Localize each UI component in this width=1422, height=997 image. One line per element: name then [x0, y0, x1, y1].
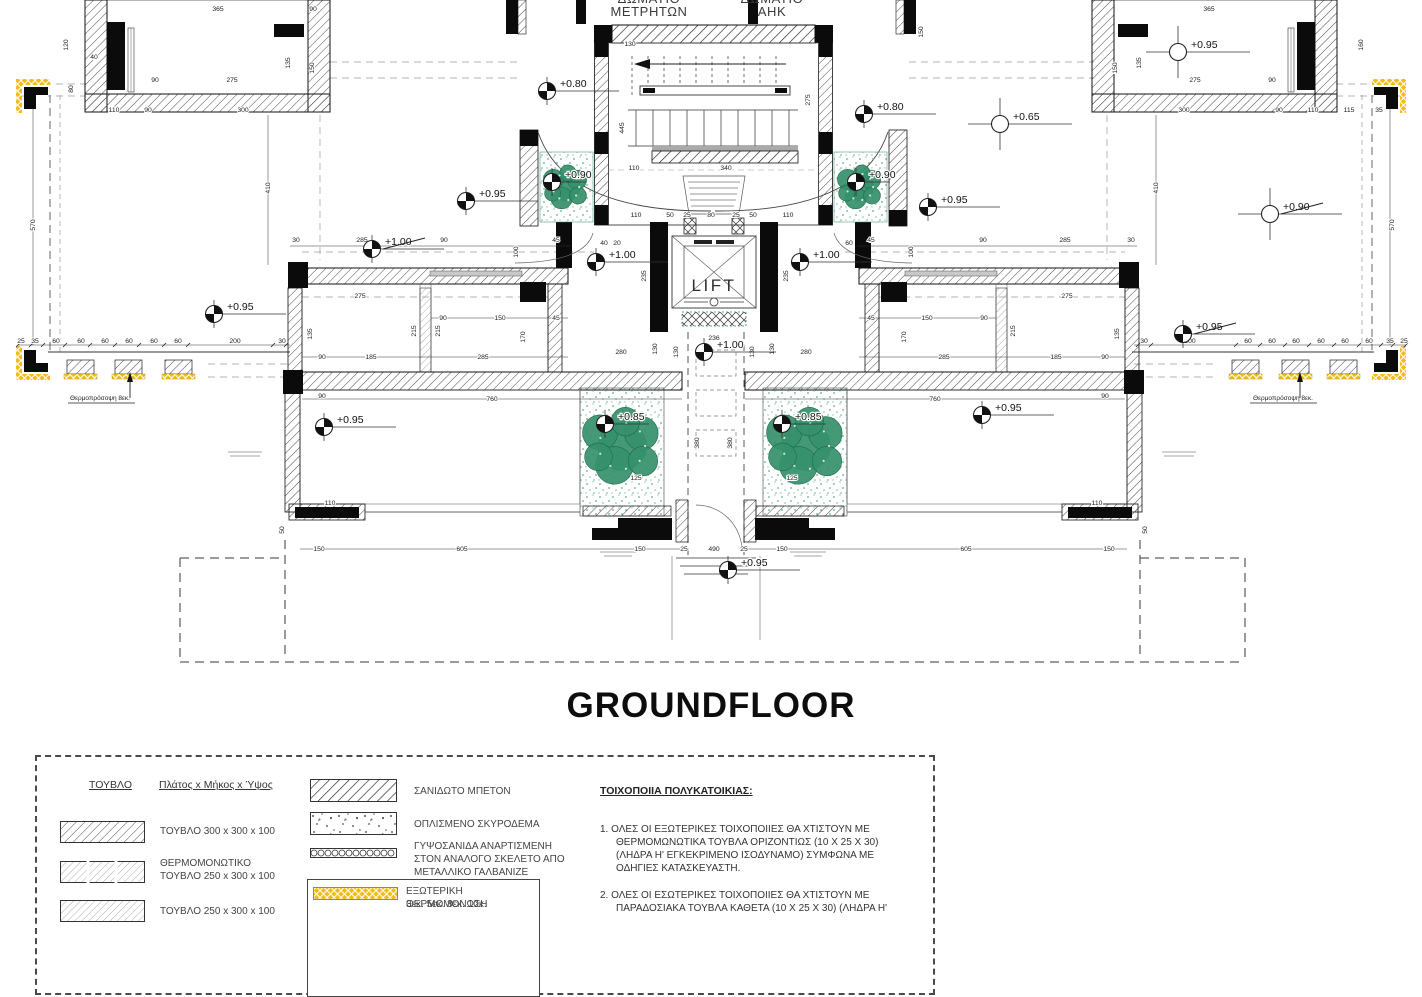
- dimension-label: 90: [1101, 393, 1109, 400]
- legend-swatch-ext-insulation: [313, 887, 398, 900]
- dimension-label: 60: [174, 338, 182, 345]
- dimension-label: 90: [151, 77, 159, 84]
- level-marker: +1.00: [364, 235, 445, 263]
- level-value: +1.00: [609, 249, 636, 261]
- legend-swatch-brick-300: [60, 821, 145, 843]
- dimension-label: 50: [1142, 526, 1149, 534]
- level-marker: +0.90: [1238, 188, 1342, 240]
- legend-label-thermo-brick-1: ΘΕΡΜΟΜΟΝΩΤΙΚΟ: [160, 857, 251, 870]
- dimension-label: 90: [318, 354, 326, 361]
- dimension-label: 25: [740, 546, 748, 553]
- floor-plan-canvas: 3652759011090300120408013515090365275901…: [0, 0, 1422, 668]
- construction-note-tag: [683, 176, 745, 214]
- dimension-label: 275: [354, 293, 366, 300]
- top-left-room: [85, 0, 330, 112]
- dimension-label: 380: [694, 437, 701, 449]
- dimension-label: 110: [109, 107, 120, 114]
- thermal-facade-annotation: Θερμοπρόσοψη 8εκ.: [1253, 394, 1313, 402]
- masonry-note-1-line-4: ΟΔΗΓΙΕΣ ΚΑΤΑΣΚΕΥΑΣΤΗ.: [600, 862, 740, 875]
- dimension-label: 60: [101, 338, 109, 345]
- dimension-label: 45: [867, 237, 875, 244]
- dimension-label: 570: [1389, 219, 1396, 231]
- level-marker: +0.80: [856, 100, 937, 128]
- legend-dims-header: Πλάτος x Μήκος x Ύψος: [159, 779, 273, 791]
- dimension-label: 280: [615, 349, 627, 356]
- dimension-label: 215: [435, 325, 442, 337]
- dimension-label: 605: [456, 546, 468, 553]
- stair-core: [506, 0, 916, 268]
- dimension-label: 150: [494, 315, 506, 322]
- dimension-label: 280: [800, 349, 812, 356]
- legend-label-board-concrete: ΣΑΝΙΔΩΤΟ ΜΠΕΤΟΝ: [414, 785, 511, 798]
- dimension-label: 380: [727, 437, 734, 449]
- dimension-label: 125: [630, 475, 642, 482]
- lift-label: LIFT: [692, 276, 737, 295]
- level-value: +0.85: [618, 411, 645, 423]
- left-wing: [285, 262, 682, 390]
- dimension-label: 60: [150, 338, 158, 345]
- dimension-label: 150: [1112, 62, 1119, 74]
- insulated-corner-bottomleft: [16, 346, 50, 380]
- legend-label-gypsum-3: ΜΕΤΑΛΛΙΚΟ ΓΑΛΒΑΝΙΖΕ: [414, 866, 528, 879]
- dimension-label: 115: [1344, 107, 1355, 114]
- dimension-label: 100: [908, 246, 915, 258]
- dimension-label: 90: [1101, 354, 1109, 361]
- legend-label-gypsum-2: ΣΤΟΝ ΑΝΑΛΟΓΟ ΣΚΕΛΕΤΟ ΑΠΟ: [414, 853, 565, 866]
- dimension-label: 365: [1203, 6, 1215, 13]
- dimension-label: 60: [52, 338, 60, 345]
- dimension-label: 185: [365, 354, 377, 361]
- dimension-label: 30: [1140, 338, 1148, 345]
- dimension-label: 90: [309, 6, 317, 13]
- dimension-label: 110: [1092, 500, 1103, 507]
- dimension-label: 275: [226, 77, 238, 84]
- dimension-label: 215: [411, 325, 418, 337]
- dimension-label: 135: [307, 328, 314, 340]
- dimension-label: 120: [63, 39, 70, 51]
- level-value: +0.95: [941, 194, 968, 206]
- dimension-label: 60: [125, 338, 133, 345]
- level-marker: +0.95: [206, 300, 287, 328]
- dimension-label: 125: [786, 475, 798, 482]
- dimension-label: 135: [1136, 57, 1143, 69]
- insulated-corner-bottomright: [1372, 346, 1406, 380]
- legend-insulation-box: ΕΞΩΤΕΡΙΚΗ ΘΕΡΜΟΜΟΝΩΣΗ 3εκ. 5εκ. 8εκ. 10κ…: [307, 879, 540, 997]
- dimension-label: 285: [1059, 237, 1071, 244]
- dimension-label: 90: [979, 237, 987, 244]
- dimension-label: 90: [440, 237, 448, 244]
- dimension-label: 80: [707, 212, 715, 219]
- dimension-label: 25: [732, 212, 740, 219]
- legend-label-reinforced-concrete: ΟΠΛΙΣΜΕΝΟ ΣΚΥΡΟΔΕΜΑ: [414, 818, 540, 831]
- level-value: +0.95: [1191, 39, 1218, 51]
- dimension-label: 410: [265, 182, 272, 194]
- dimension-label: 170: [901, 331, 908, 343]
- architectural-drawing-page: { "title": "GROUNDFLOOR", "plan": { "roo…: [0, 0, 1422, 914]
- left-terrace: [16, 79, 290, 380]
- level-value: +0.90: [1283, 201, 1310, 213]
- dimension-label: 760: [486, 396, 498, 403]
- level-marker: +0.95: [974, 401, 1055, 429]
- dimension-label: 50: [666, 212, 674, 219]
- level-value: +1.00: [385, 236, 412, 248]
- dimension-label: 35: [1375, 107, 1383, 114]
- dimension-label: 90: [318, 393, 326, 400]
- dimension-label: 340: [720, 165, 732, 172]
- legend-label-brick-300: ΤΟΥΒΛΟ 300 x 300 x 100: [160, 825, 275, 838]
- level-value: +0.95: [227, 301, 254, 313]
- legend-label-gypsum-1: ΓΥΨΟΣΑΝΙΔΑ ΑΝΑΡΤΙΣΜΕΝΗ: [414, 840, 552, 853]
- dimension-label: 605: [960, 546, 972, 553]
- dimension-label: 50: [279, 526, 286, 534]
- masonry-note-1-line-2: ΘΕΡΜΟΜΩΝΩΤΙΚΑ ΤΟΥΒΛΑ ΟΡΙΖΟΝΤΙΩΣ (10 Χ 25…: [600, 836, 878, 849]
- meter-room-label-line2: ΜΕΤΡΗΤΩΝ: [610, 4, 687, 19]
- dimension-label: 150: [776, 546, 788, 553]
- dimension-label: 90: [1268, 77, 1276, 84]
- dimension-label: 160: [1358, 39, 1365, 51]
- dimension-label: 110: [1308, 107, 1319, 114]
- dimension-label: 25: [17, 338, 25, 345]
- dimension-label: 60: [1341, 338, 1349, 345]
- masonry-note-2-line-2: ΠΑΡΑΔΟΣΙΑΚΑ ΤΟΥΒΛΑ ΚΑΘΕΤΑ (10 Χ 25 Χ 30)…: [600, 902, 887, 915]
- level-value: +1.00: [813, 249, 840, 261]
- legend-swatch-gypsum-board: [310, 848, 397, 858]
- level-value: +0.80: [877, 101, 904, 113]
- dimension-label: 60: [1244, 338, 1252, 345]
- dimension-label: 235: [641, 270, 648, 282]
- dimension-label: 200: [229, 338, 241, 345]
- thermal-facade-annotation: Θερμοπρόσοψη 8εκ.: [70, 394, 130, 402]
- level-value: +0.95: [337, 414, 364, 426]
- dimension-label: 410: [1153, 182, 1160, 194]
- dimension-label: 90: [439, 315, 447, 322]
- level-marker: +0.95: [920, 193, 1001, 221]
- dimension-label: 60: [1365, 338, 1373, 345]
- dimension-label: 490: [708, 546, 720, 553]
- dimension-label: 60: [1317, 338, 1325, 345]
- dimension-label: 110: [631, 212, 642, 219]
- legend-label-thermo-brick-2: ΤΟΥΒΛΟ 250 x 300 x 100: [160, 870, 275, 883]
- dimension-label: 150: [921, 315, 933, 322]
- floor-plan-drawing: 3652759011090300120408013515090365275901…: [0, 0, 1422, 668]
- dimension-label: 30: [292, 237, 300, 244]
- dimension-label: 60: [845, 240, 853, 247]
- dimension-label: 110: [783, 212, 794, 219]
- dimension-label: 30: [278, 338, 286, 345]
- lift-shaft: [650, 218, 778, 332]
- level-value: +1.00: [717, 339, 744, 351]
- dimension-label: 25: [680, 546, 688, 553]
- dimension-label: 30: [1127, 237, 1135, 244]
- dimension-label: 150: [1103, 546, 1115, 553]
- dimension-label: 275: [805, 94, 812, 106]
- legend-swatch-brick-250: [60, 900, 145, 922]
- ahk-room-label-line2: ΑΗΚ: [758, 4, 787, 19]
- dimension-label: 130: [624, 41, 636, 48]
- dimension-label: 150: [309, 62, 316, 74]
- dimension-label: 110: [325, 500, 336, 507]
- level-marker: +0.95: [1146, 26, 1250, 78]
- level-value: +0.95: [1196, 321, 1223, 333]
- legend-box: ΤΟΥΒΛΟ Πλάτος x Μήκος x Ύψος ΤΟΥΒΛΟ 300 …: [35, 755, 935, 995]
- legend-label-brick-250: ΤΟΥΒΛΟ 250 x 300 x 100: [160, 905, 275, 918]
- dimension-label: 130: [652, 343, 659, 355]
- level-value: +0.95: [479, 188, 506, 200]
- dimension-label: 110: [629, 165, 640, 172]
- dimension-label: 235: [783, 270, 790, 282]
- dimension-label: 90: [1275, 107, 1283, 114]
- level-value: +0.90: [565, 169, 592, 181]
- dimension-label: 45: [867, 315, 875, 322]
- legend-swatch-board-concrete: [310, 779, 397, 802]
- dimension-label: 35: [31, 338, 39, 345]
- dimension-label: 570: [30, 219, 37, 231]
- dimension-label: 300: [1178, 107, 1190, 114]
- page-title: GROUNDFLOOR: [0, 686, 1422, 726]
- legend-label-ext-insulation-2: 3εκ. 5εκ. 8εκ. 10κ.: [406, 898, 487, 911]
- masonry-note-2-line-1: 2. ΟΛΕΣ ΟΙ ΕΣΩΤΕΡΙΚΕΣ ΤΟΙΧΟΠΟΙΙΕΣ ΘΑ ΧΤΙ…: [600, 889, 869, 902]
- level-value: +0.65: [1013, 111, 1040, 123]
- dimension-label: 185: [1050, 354, 1062, 361]
- dimension-label: 40: [600, 240, 608, 247]
- dimension-label: 130: [769, 343, 776, 355]
- dimension-label: 300: [237, 107, 249, 114]
- dimension-label: 60: [1292, 338, 1300, 345]
- level-value: +0.80: [560, 78, 587, 90]
- right-wing: [745, 262, 1142, 390]
- dimension-label: 45: [552, 237, 560, 244]
- dimension-label: 90: [980, 315, 988, 322]
- dimension-label: 215: [1010, 325, 1017, 337]
- dimension-label: 130: [673, 346, 680, 358]
- dimension-label: 365: [212, 6, 224, 13]
- level-value: +0.90: [869, 169, 896, 181]
- masonry-note-1-line-1: 1. ΟΛΕΣ ΟΙ ΕΞΩΤΕΡΙΚΕΣ ΤΟΙΧΟΠΟΙΙΕΣ ΘΑ ΧΤΙ…: [600, 823, 870, 836]
- dimension-label: 275: [1189, 77, 1201, 84]
- right-terrace: [1132, 79, 1406, 380]
- legend-swatch-thermo-brick: [60, 861, 145, 883]
- dimension-label: 25: [683, 212, 691, 219]
- dimension-label: 135: [1114, 328, 1121, 340]
- dimension-label: 275: [1061, 293, 1073, 300]
- dimension-label: 760: [929, 396, 941, 403]
- top-right-room: [1092, 0, 1337, 112]
- level-marker: +0.65: [968, 98, 1072, 150]
- dimension-label: 285: [938, 354, 950, 361]
- dimension-label: 150: [634, 546, 646, 553]
- dimension-label: 150: [918, 26, 925, 38]
- level-value: +0.95: [995, 402, 1022, 414]
- dimension-label: 135: [285, 57, 292, 69]
- dimension-label: 20: [613, 240, 621, 247]
- level-value: +0.95: [741, 557, 768, 569]
- dimension-label: 60: [77, 338, 85, 345]
- dimension-label: 90: [144, 107, 152, 114]
- level-value: +0.85: [795, 411, 822, 423]
- legend-bricks-header: ΤΟΥΒΛΟ: [89, 779, 132, 791]
- legend-swatch-reinforced-concrete: [310, 812, 397, 835]
- dimension-label: 50: [749, 212, 757, 219]
- dimension-label: 40: [90, 54, 98, 61]
- dimension-label: 45: [552, 315, 560, 322]
- insulated-corner-topleft: [16, 79, 50, 113]
- dimension-label: 170: [520, 331, 527, 343]
- dimension-label: 35: [1386, 338, 1394, 345]
- dimension-label: 25: [1400, 338, 1408, 345]
- dimension-label: 445: [619, 122, 626, 134]
- level-marker: +0.95: [316, 413, 397, 441]
- dimension-label: 150: [313, 546, 325, 553]
- dimension-label: 100: [513, 246, 520, 258]
- dimension-label: 285: [477, 354, 489, 361]
- dimension-label: 80: [68, 85, 75, 93]
- dimension-label: 60: [1268, 338, 1276, 345]
- masonry-notes-heading: ΤΟΙΧΟΠΟΙΙΑ ΠΟΛΥΚΑΤΟΙΚΙΑΣ:: [600, 785, 753, 797]
- masonry-note-1-line-3: (ΛΗΔΡΑ Η' ΕΓΚΕΚΡΙΜΕΝΟ ΙΣΟΔΥΝΑΜΟ) ΣΥΜΦΩΝΑ…: [600, 849, 874, 862]
